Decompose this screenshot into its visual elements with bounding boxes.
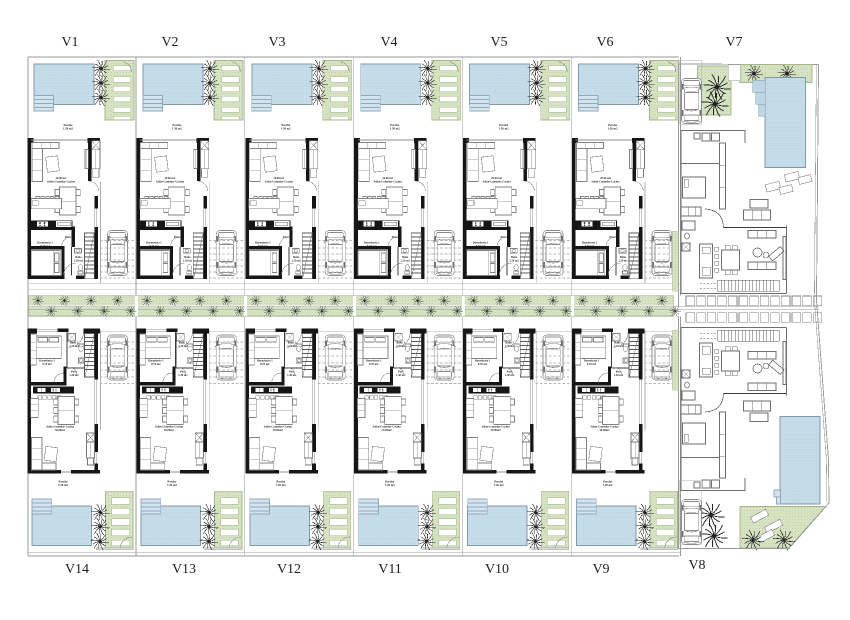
- svg-text:V14: V14: [65, 562, 89, 577]
- svg-text:V2: V2: [161, 35, 178, 50]
- svg-text:V11: V11: [378, 562, 402, 577]
- svg-text:V5: V5: [490, 35, 507, 50]
- svg-text:V1: V1: [61, 35, 78, 50]
- svg-text:V3: V3: [268, 35, 285, 50]
- svg-text:V6: V6: [596, 35, 613, 50]
- svg-text:V8: V8: [688, 558, 705, 573]
- svg-text:V7: V7: [725, 35, 742, 50]
- svg-text:V13: V13: [172, 562, 196, 577]
- svg-text:V9: V9: [592, 562, 609, 577]
- svg-text:V10: V10: [485, 562, 509, 577]
- svg-text:V4: V4: [380, 35, 397, 50]
- svg-text:V12: V12: [277, 562, 301, 577]
